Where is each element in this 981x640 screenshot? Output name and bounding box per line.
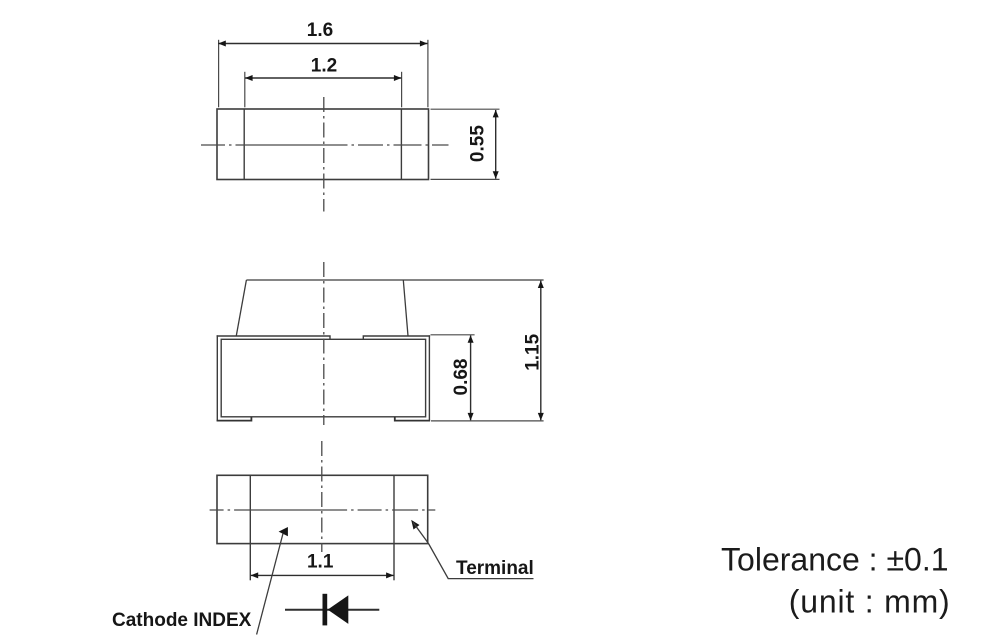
svg-text:1.15: 1.15	[522, 333, 543, 370]
svg-text:(unit : mm): (unit : mm)	[789, 583, 951, 619]
svg-text:Tolerance : ±0.1: Tolerance : ±0.1	[721, 542, 948, 578]
svg-text:1.1: 1.1	[307, 552, 334, 573]
svg-text:1.6: 1.6	[307, 20, 333, 41]
svg-text:Cathode INDEX: Cathode INDEX	[112, 610, 252, 631]
svg-text:0.55: 0.55	[468, 125, 489, 162]
svg-text:Terminal: Terminal	[456, 558, 534, 579]
svg-text:1.2: 1.2	[311, 56, 337, 77]
svg-text:0.68: 0.68	[451, 359, 472, 396]
